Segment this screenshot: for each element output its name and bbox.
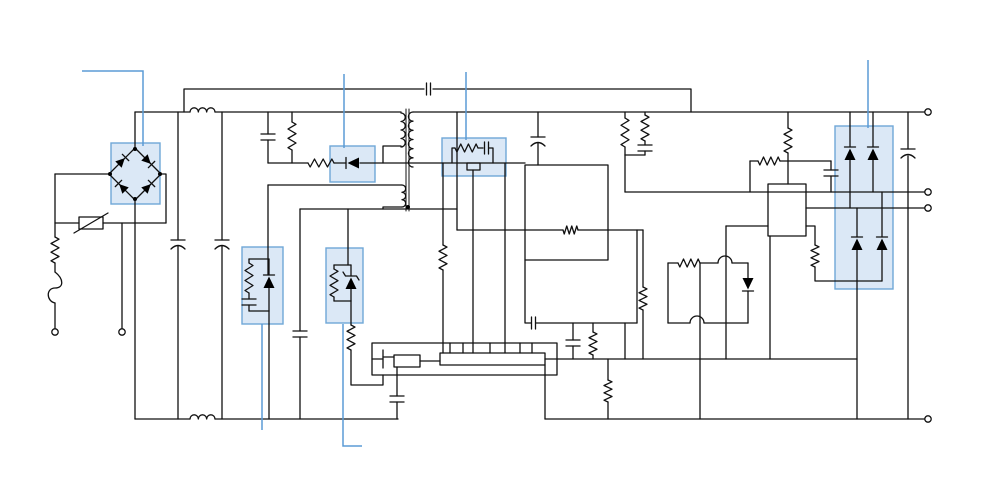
emi-inductor-bottom (190, 415, 215, 419)
bridge-node-top (133, 147, 137, 151)
clamp-resistor (288, 122, 296, 150)
bypass-capacitor (390, 396, 404, 402)
output-terminal-return (925, 416, 931, 422)
wire (525, 260, 531, 323)
divider-capacitor (638, 145, 652, 151)
transformer-core (406, 109, 409, 211)
diode-triangle (743, 278, 754, 290)
wire (160, 174, 166, 223)
drain-resistor (439, 245, 447, 270)
opto-bias-resistor (784, 128, 792, 153)
controller-block-a (394, 355, 420, 367)
output-terminal-sense-2 (925, 205, 931, 211)
bias-filter-capacitor (293, 331, 307, 337)
output-terminal-positive (925, 109, 931, 115)
wire (806, 226, 815, 245)
wire (433, 89, 691, 112)
bridge-node-right (158, 172, 162, 176)
feedback-isolation-box (525, 165, 608, 260)
ac-input-terminal-1 (52, 329, 58, 335)
bridge-node-left (108, 172, 112, 176)
ac-input-terminal-2 (119, 329, 125, 335)
wire-hop-2 (690, 316, 704, 323)
divider-resistor-1 (621, 118, 629, 147)
opto-series-resistor (758, 157, 780, 165)
tvs-series-resistor (347, 325, 355, 350)
winding-polarity-dot (406, 205, 410, 209)
control-capacitor (566, 340, 580, 346)
transformer-bias-winding (402, 185, 406, 207)
divider-resistor-2 (641, 115, 649, 141)
y-capacitor (427, 83, 431, 95)
schematic-svg (0, 0, 1000, 500)
feedback-resistor (563, 226, 578, 234)
callout-bridge (82, 71, 143, 146)
inrush-resistor (51, 237, 59, 263)
wire (383, 146, 401, 163)
fuse (48, 272, 62, 303)
schematic-canvas (0, 0, 1000, 500)
wire (351, 350, 383, 385)
coupling-capacitor (532, 317, 536, 329)
wire (184, 89, 424, 112)
controller-block-b (440, 353, 545, 365)
lower-divider-resistor (639, 287, 647, 310)
control-resistor (589, 332, 597, 355)
emi-inductor-top (190, 108, 215, 112)
reference-zener (743, 278, 754, 291)
wire-hop-1 (718, 256, 732, 263)
controller-ic (372, 343, 557, 375)
preload-resistor (604, 380, 612, 402)
transformer-primary (401, 113, 405, 147)
reference-resistor (678, 259, 700, 267)
bridge-rectifier-highlight[interactable] (111, 143, 160, 204)
output-terminal-sense-1 (925, 189, 931, 195)
clamp-capacitor (261, 134, 275, 140)
opto-pulldown-resistor (811, 245, 819, 267)
varistor (74, 213, 108, 233)
bridge-node-bottom (133, 197, 137, 201)
